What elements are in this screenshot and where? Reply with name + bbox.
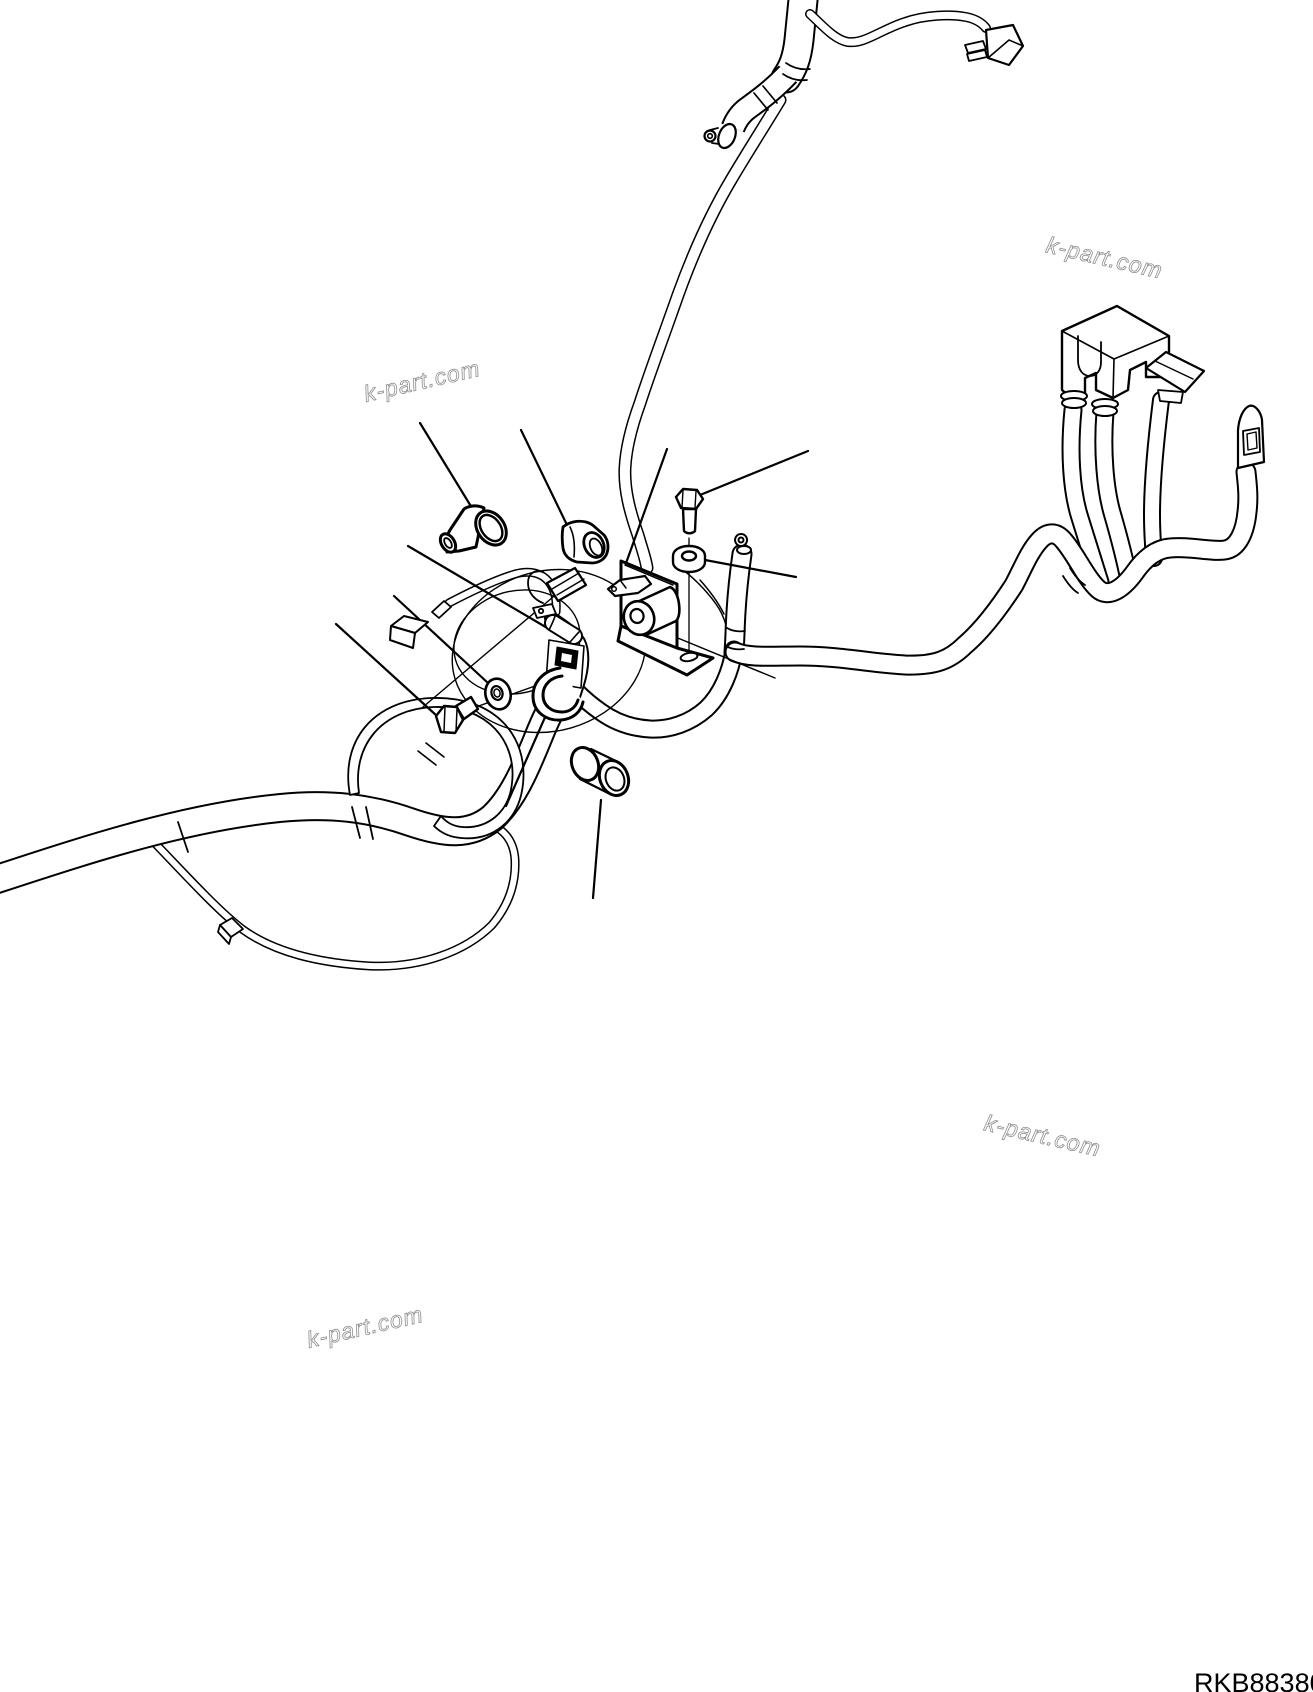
svg-text:RKB88380: RKB88380 — [1194, 1668, 1313, 1692]
